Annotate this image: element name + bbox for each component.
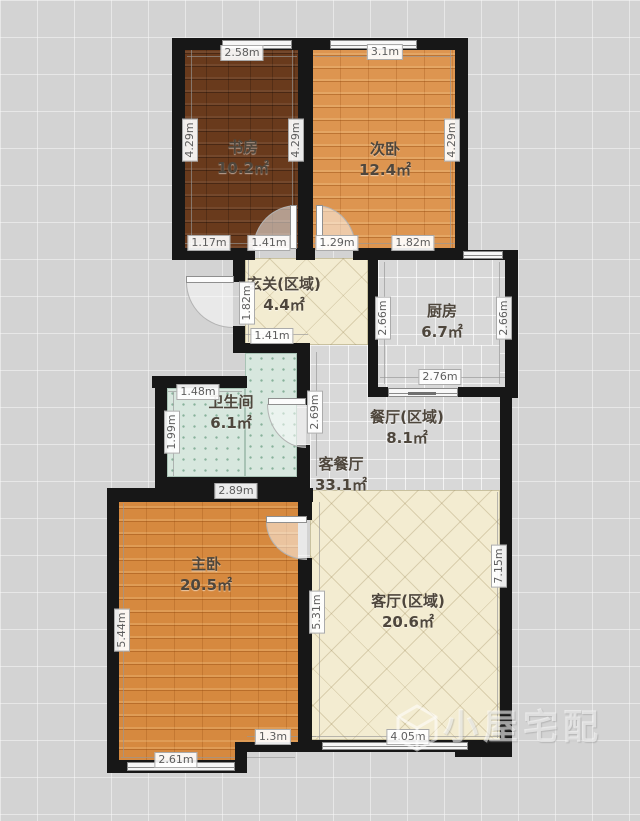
wall	[296, 248, 315, 260]
window	[463, 251, 503, 259]
room-area: 20.6㎡	[371, 612, 445, 633]
dim-study-bottom-right: 1.41m	[247, 235, 290, 251]
room-label-study: 书房 10.2㎡	[217, 137, 269, 179]
sliding-door-panel	[408, 392, 436, 395]
room-area: 33.1㎡	[315, 475, 367, 496]
room-area: 6.7㎡	[421, 322, 463, 343]
dimension-line	[121, 757, 295, 758]
wall	[298, 558, 312, 748]
dim-bathroom-left: 1.99m	[164, 410, 180, 453]
dim-entry-left: 1.82m	[239, 281, 255, 324]
wall	[297, 445, 310, 479]
dim-bathroom-bottom: 2.89m	[214, 483, 257, 499]
wall	[107, 488, 313, 502]
dim-hallway: 2.69m	[307, 390, 323, 433]
dim-living-right: 7.15m	[491, 544, 507, 587]
dim-master-bottom-right: 1.3m	[255, 729, 291, 745]
room-label-living: 客厅(区域) 20.6㎡	[371, 591, 445, 633]
dim-study-bottom-left: 1.17m	[187, 235, 230, 251]
master-bedroom-door-leaf	[266, 516, 307, 523]
room-label-master-bedroom: 主卧 20.5㎡	[180, 554, 232, 596]
room-name: 客厅(区域)	[371, 591, 445, 612]
wall	[233, 258, 245, 282]
dim-entry-bottom: 1.41m	[250, 328, 293, 344]
room-name: 厨房	[421, 301, 463, 322]
bathroom-door-leaf	[268, 398, 306, 405]
entrance-door-swing	[186, 282, 233, 328]
dim-study-left: 4.29m	[182, 118, 198, 161]
dim-kitchen-bottom: 2.76m	[418, 369, 461, 385]
floor-plan: 书房 10.2㎡ 次卧 12.4㎡ 玄关(区域) 4.4㎡ 厨房 6.7㎡ 卫生…	[0, 0, 640, 821]
dim-bathroom-top: 1.48m	[176, 384, 219, 400]
watermark-cube-logo-icon	[396, 704, 438, 752]
room-area: 20.5㎡	[180, 575, 232, 596]
dim-second-bottom-right: 1.82m	[391, 235, 434, 251]
dim-study-top: 2.58m	[220, 45, 263, 61]
wall	[368, 387, 388, 397]
dim-kitchen-right: 2.66m	[496, 296, 512, 339]
watermark-text: 小屋宅配	[443, 705, 603, 751]
dim-study-right: 4.29m	[288, 118, 304, 161]
room-name: 次卧	[359, 139, 411, 160]
room-label-second-bedroom: 次卧 12.4㎡	[359, 139, 411, 181]
dim-second-right: 4.29m	[444, 118, 460, 161]
entrance-door-leaf	[186, 276, 234, 283]
room-label-living-dining: 客餐厅 33.1㎡	[315, 454, 367, 496]
room-name: 玄关(区域)	[247, 274, 321, 295]
room-area: 12.4㎡	[359, 160, 411, 181]
room-area: 10.2㎡	[217, 158, 269, 179]
room-label-dining: 餐厅(区域) 8.1㎡	[370, 407, 444, 449]
study-door-leaf	[290, 205, 297, 249]
dim-second-top: 3.1m	[367, 44, 403, 60]
room-area: 6.1㎡	[208, 413, 253, 434]
room-label-entry: 玄关(区域) 4.4㎡	[247, 274, 321, 316]
wall	[172, 38, 468, 50]
dim-master-left: 5.44m	[114, 608, 130, 651]
dimension-line	[497, 492, 498, 738]
room-name: 书房	[217, 137, 269, 158]
dim-master-right: 5.31m	[309, 590, 325, 633]
room-name: 主卧	[180, 554, 232, 575]
room-area: 4.4㎡	[247, 295, 321, 316]
room-label-kitchen: 厨房 6.7㎡	[421, 301, 463, 343]
room-area: 8.1㎡	[370, 428, 444, 449]
room-name: 餐厅(区域)	[370, 407, 444, 428]
room-name: 客餐厅	[315, 454, 367, 475]
dim-kitchen-left: 2.66m	[375, 296, 391, 339]
dim-second-bottom-left: 1.29m	[315, 235, 358, 251]
dim-master-bottom: 2.61m	[154, 752, 197, 768]
watermark: 小屋宅配	[396, 704, 603, 752]
